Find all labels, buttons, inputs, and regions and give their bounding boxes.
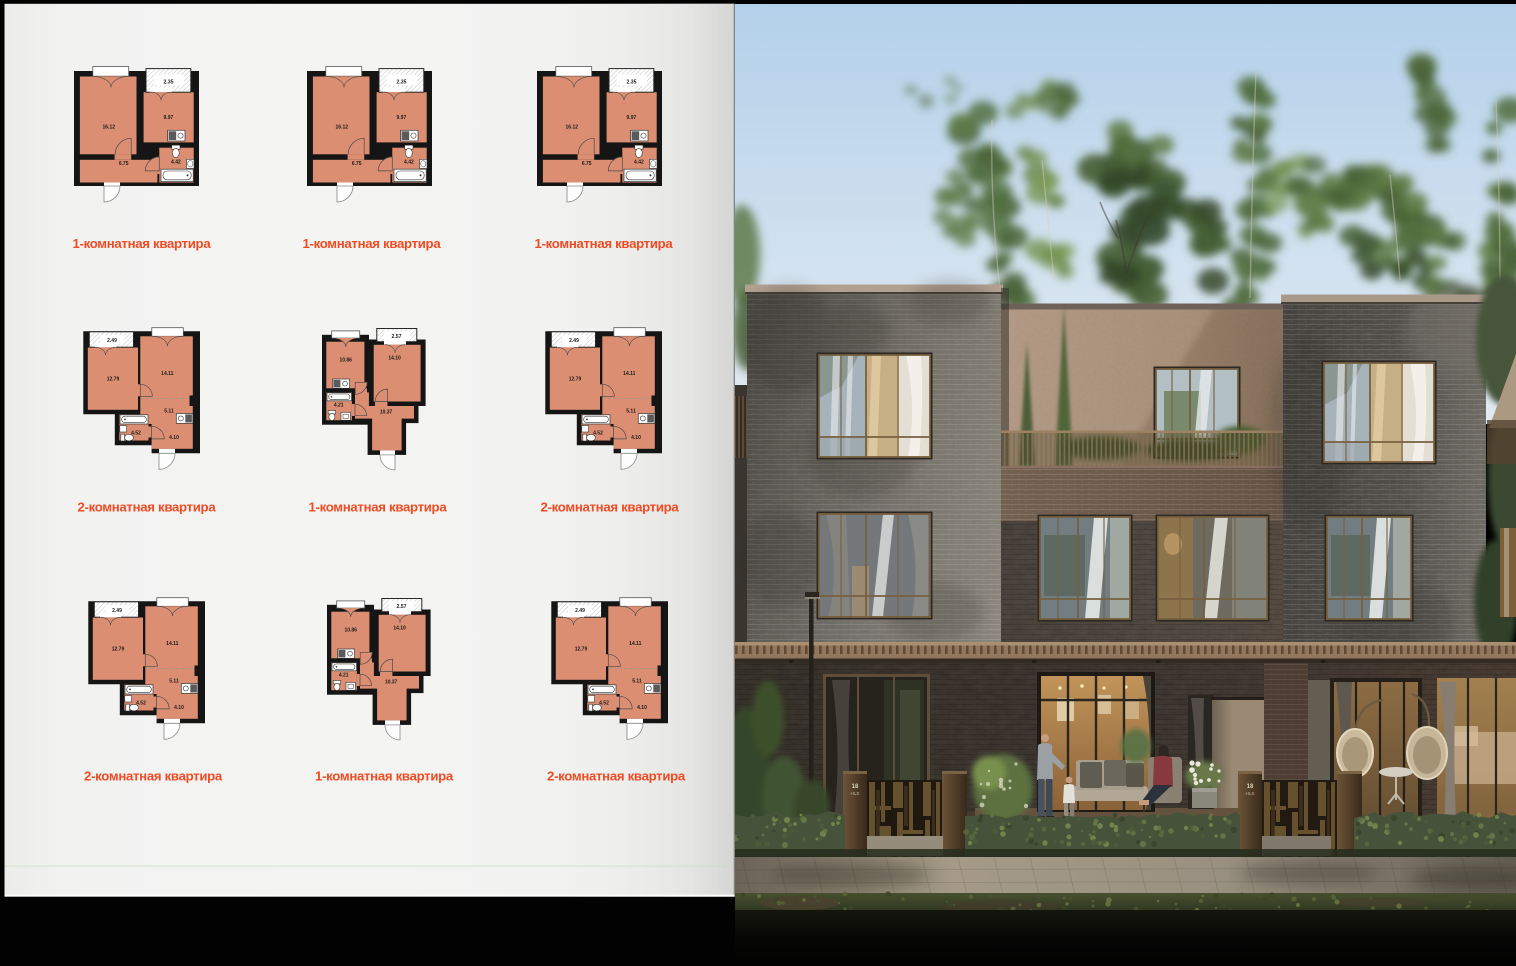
- svg-text:2-комнатная квартира: 2-комнатная квартира: [77, 500, 216, 515]
- svg-text:2-комнатная квартира: 2-комнатная квартира: [547, 769, 686, 784]
- svg-text:18: 18: [1247, 784, 1254, 790]
- svg-text:1-комнатная квартира: 1-комнатная квартира: [72, 236, 211, 251]
- svg-text:1-комнатная квартира: 1-комнатная квартира: [302, 236, 441, 251]
- svg-text:HLS: HLS: [1246, 791, 1255, 796]
- svg-text:18: 18: [852, 784, 859, 790]
- svg-text:1-комнатная квартира: 1-комнатная квартира: [315, 769, 454, 784]
- svg-text:1-комнатная квартира: 1-комнатная квартира: [308, 500, 447, 515]
- svg-text:2-комнатная квартира: 2-комнатная квартира: [541, 500, 680, 515]
- svg-text:HLS: HLS: [851, 791, 860, 796]
- svg-text:1-комнатная квартира: 1-комнатная квартира: [535, 236, 674, 251]
- svg-text:2-комнатная квартира: 2-комнатная квартира: [84, 769, 223, 784]
